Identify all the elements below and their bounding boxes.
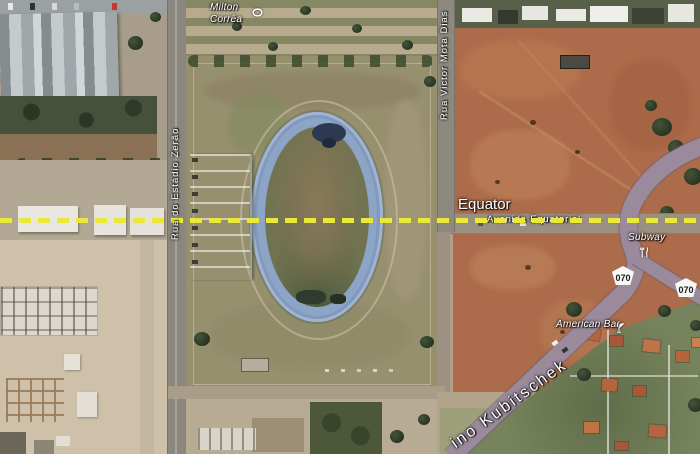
poi-label-line2: Corrêa (210, 14, 242, 26)
equator-dashed-line (0, 218, 700, 223)
poi-label-american-bar[interactable]: American Bar (556, 319, 620, 330)
shield-number: 070 (615, 273, 630, 283)
poi-label-line1: Milton (210, 2, 242, 14)
satellite-map[interactable]: 070 070 Milton Corrêa Rua do Estádio Zer… (0, 0, 700, 454)
equator-label: Equator (458, 196, 511, 213)
poi-label-subway[interactable]: Subway (628, 232, 665, 243)
highway-roads (0, 0, 700, 454)
car (478, 223, 483, 226)
shield-number: 070 (678, 285, 693, 295)
poi-label-milton-correa[interactable]: Milton Corrêa (210, 2, 242, 26)
stadium-icon (252, 4, 263, 22)
street-label-rua-victor: Rua Victor Mota Dias (439, 8, 450, 120)
restaurant-icon (640, 245, 649, 263)
street-label-rua-estadio: Rua do Estádio Zerão (170, 95, 181, 240)
